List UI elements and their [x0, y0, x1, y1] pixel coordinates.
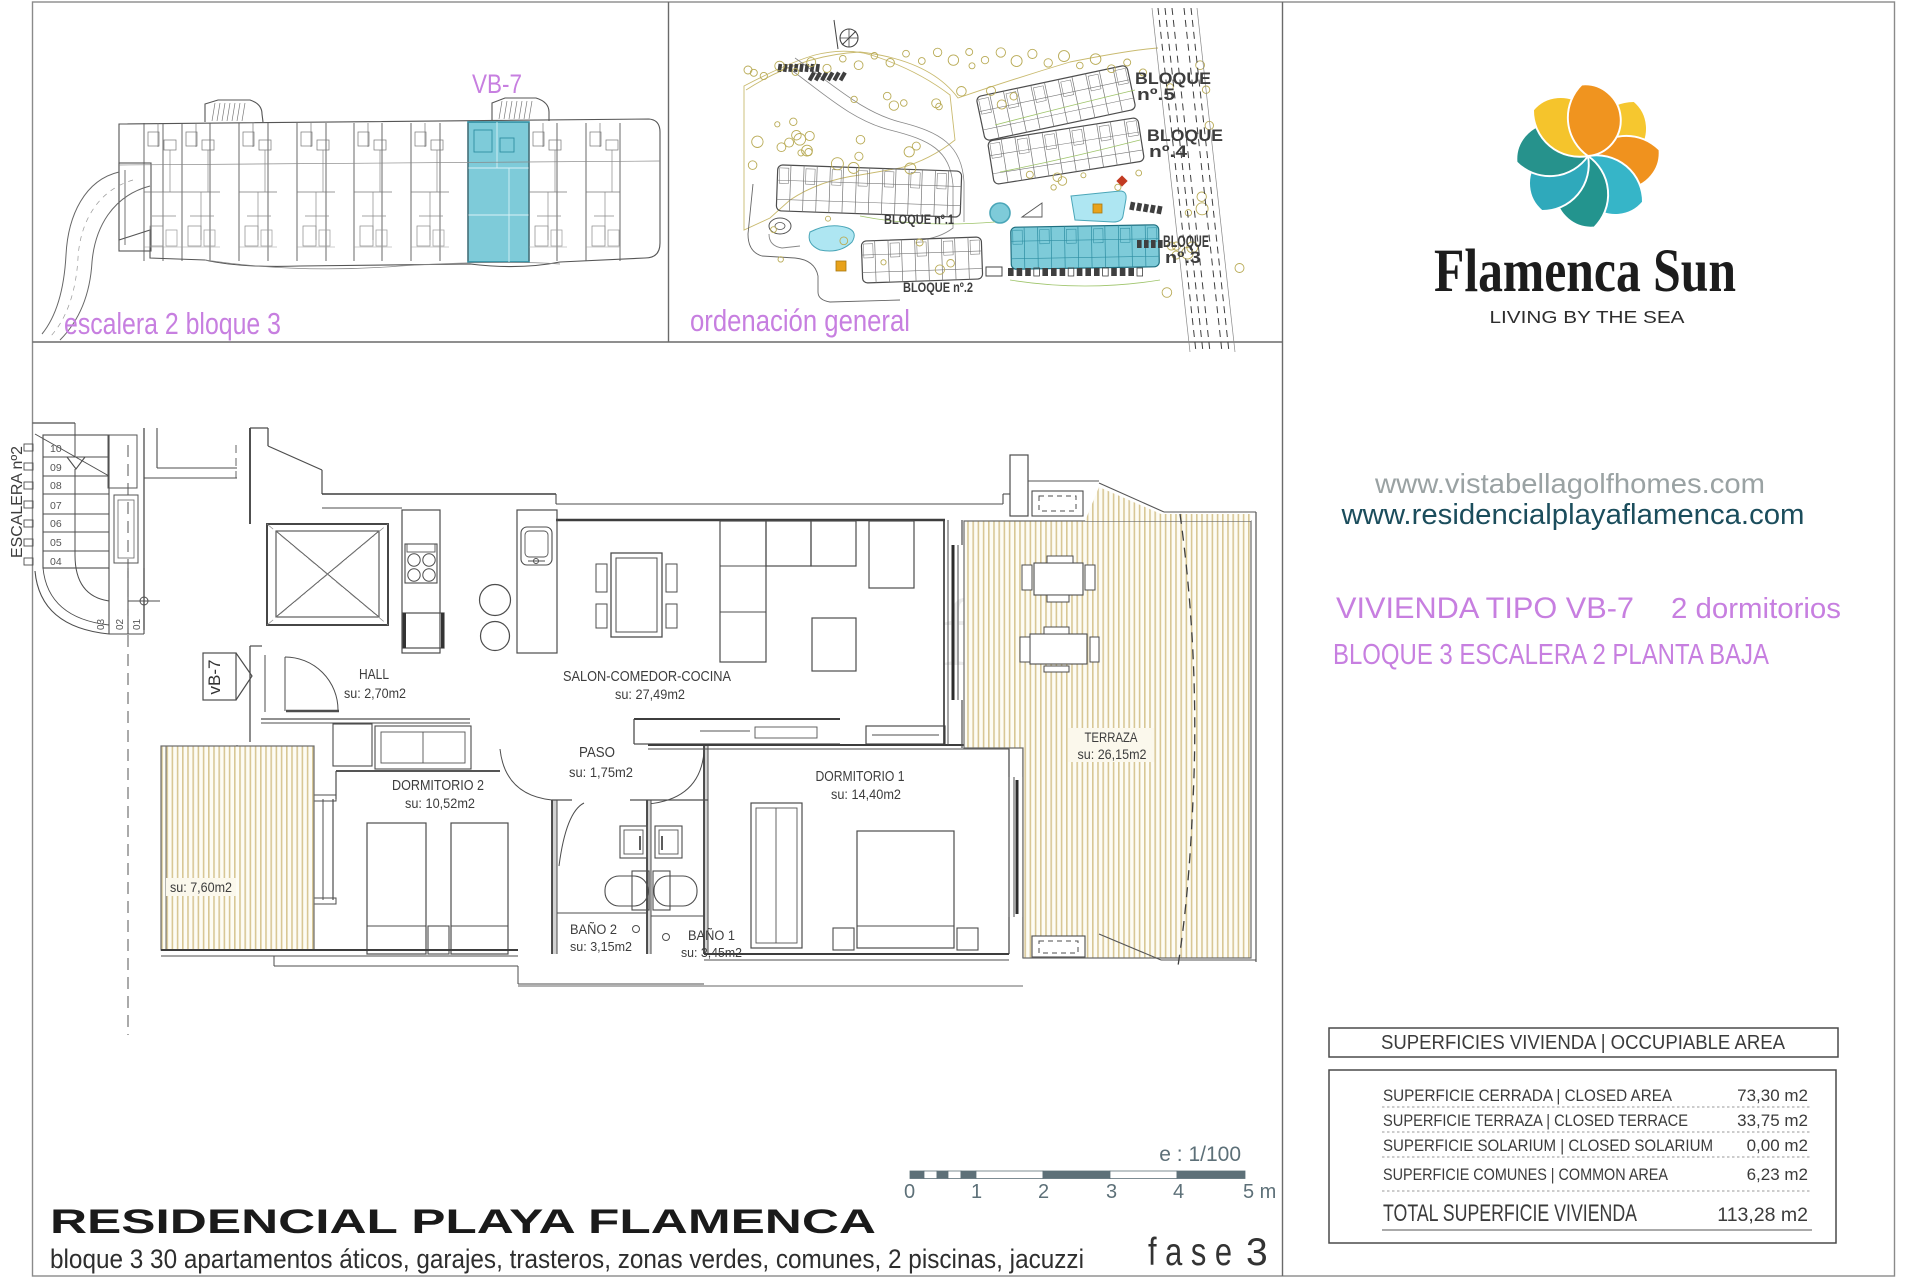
svg-text:BAÑO 2: BAÑO 2	[570, 922, 617, 937]
svg-text:nº.5: nº.5	[1137, 86, 1175, 104]
svg-text:nº.4: nº.4	[1149, 143, 1188, 161]
svg-text:su: 1,75m2: su: 1,75m2	[569, 765, 633, 780]
svg-text:f a s e: f a s e	[1148, 1231, 1232, 1274]
svg-text:e : 1/100: e : 1/100	[1159, 1143, 1241, 1166]
svg-text:05: 05	[50, 537, 62, 549]
svg-text:TERRAZA: TERRAZA	[1085, 729, 1139, 745]
svg-text:SUPERFICIE SOLARIUM | CLOSED: SUPERFICIE SOLARIUM | CLOSED SOLARIUM	[1383, 1136, 1713, 1155]
svg-text:4: 4	[1173, 1181, 1184, 1203]
svg-text:0,00 m2: 0,00 m2	[1747, 1136, 1808, 1155]
svg-text:DORMITORIO 1: DORMITORIO 1	[816, 769, 905, 785]
svg-text:BLOQUE 3 ESCALERA 2 PLANTA B: BLOQUE 3 ESCALERA 2 PLANTA BAJA	[1333, 639, 1770, 671]
svg-text:HALL: HALL	[359, 667, 389, 683]
svg-text:SUPERFICIES VIVIENDA | OCCUP: SUPERFICIES VIVIENDA | OCCUPIABLE AREA	[1381, 1031, 1785, 1054]
svg-text:113,28 m2: 113,28 m2	[1717, 1204, 1808, 1226]
svg-text:09: 09	[50, 462, 62, 474]
svg-text:nº.3: nº.3	[1165, 249, 1201, 267]
svg-text:6,23 m2: 6,23 m2	[1747, 1165, 1808, 1184]
svg-text:su: 14,40m2: su: 14,40m2	[831, 787, 901, 802]
svg-text:bloque 3 30 apartamentos átic: bloque 3 30 apartamentos áticos, garajes…	[50, 1244, 1084, 1274]
svg-text:escalera 2 bloque 3: escalera 2 bloque 3	[64, 306, 281, 341]
svg-text:73,30 m2: 73,30 m2	[1737, 1086, 1808, 1105]
svg-text:08: 08	[50, 480, 62, 492]
svg-text:SUPERFICIE TERRAZA | CLOSED T: SUPERFICIE TERRAZA | CLOSED TERRACE	[1383, 1111, 1688, 1130]
svg-text:su: 3,15m2: su: 3,15m2	[570, 939, 632, 954]
svg-text:www.vistabellagolfhomes.com: www.vistabellagolfhomes.com	[1374, 468, 1765, 499]
svg-text:su: 26,15m2: su: 26,15m2	[1078, 747, 1147, 762]
svg-text:2: 2	[1038, 1181, 1049, 1203]
svg-text:su: 7,60m2: su: 7,60m2	[170, 880, 232, 895]
svg-text:ordenación general: ordenación general	[690, 303, 910, 338]
svg-text:3: 3	[1106, 1181, 1117, 1203]
svg-text:www.residencialplayaflamenca.c: www.residencialplayaflamenca.com	[1340, 499, 1804, 531]
svg-text:su: 3,45m2: su: 3,45m2	[681, 945, 742, 960]
svg-text:07: 07	[50, 500, 62, 512]
svg-text:VIVIENDA TIPO VB-7: VIVIENDA TIPO VB-7	[1336, 592, 1634, 625]
svg-text:RESIDENCIAL PLAYA FLAMENCA: RESIDENCIAL PLAYA FLAMENCA	[50, 1203, 876, 1241]
svg-text:TOTAL SUPERFICIE VIVIENDA: TOTAL SUPERFICIE VIVIENDA	[1383, 1200, 1637, 1227]
svg-text:3: 3	[1246, 1231, 1268, 1274]
svg-text:SUPERFICIE COMUNES | COMMON A: SUPERFICIE COMUNES | COMMON AREA	[1383, 1165, 1669, 1184]
svg-text:BAÑO 1: BAÑO 1	[688, 928, 735, 943]
svg-text:BLOQUE nº.2: BLOQUE nº.2	[903, 279, 973, 295]
svg-text:10: 10	[50, 443, 62, 455]
svg-text:LIVING BY THE SEA: LIVING BY THE SEA	[1490, 307, 1685, 327]
svg-text:2 dormitorios: 2 dormitorios	[1671, 593, 1841, 625]
svg-text:ESCALERA nº2: ESCALERA nº2	[9, 446, 26, 558]
svg-text:1: 1	[971, 1181, 982, 1203]
svg-text:SUPERFICIE CERRADA | CLOSED A: SUPERFICIE CERRADA | CLOSED AREA	[1383, 1086, 1673, 1105]
svg-text:33,75 m2: 33,75 m2	[1737, 1111, 1808, 1130]
svg-text:BLOQUE nº.1: BLOQUE nº.1	[884, 211, 954, 227]
svg-text:SALON-COMEDOR-COCINA: SALON-COMEDOR-COCINA	[563, 669, 731, 685]
svg-text:su: 27,49m2: su: 27,49m2	[615, 687, 685, 702]
svg-text:04: 04	[50, 556, 62, 568]
svg-text:VB-7: VB-7	[472, 69, 522, 99]
svg-text:vB-7: vB-7	[205, 660, 224, 695]
svg-text:PASO: PASO	[579, 745, 615, 761]
svg-text:5 m: 5 m	[1243, 1181, 1276, 1203]
svg-text:DORMITORIO 2: DORMITORIO 2	[392, 778, 484, 794]
svg-text:01: 01	[132, 618, 143, 630]
svg-text:06: 06	[50, 518, 62, 530]
svg-text:su: 10,52m2: su: 10,52m2	[405, 796, 475, 811]
svg-text:0: 0	[904, 1181, 915, 1203]
svg-text:su: 2,70m2: su: 2,70m2	[344, 686, 406, 701]
svg-text:Flamenca Sun: Flamenca Sun	[1434, 238, 1736, 305]
svg-text:02: 02	[115, 618, 126, 630]
